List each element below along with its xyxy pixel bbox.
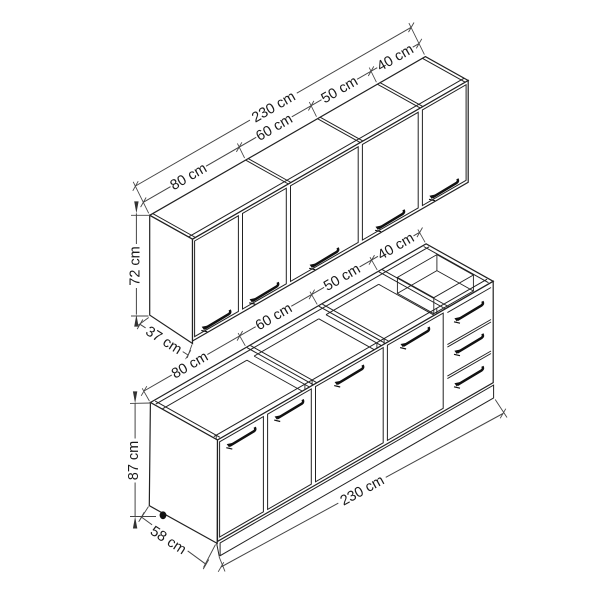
svg-text:87 cm: 87 cm	[126, 441, 142, 481]
svg-text:72 cm: 72 cm	[127, 246, 143, 286]
